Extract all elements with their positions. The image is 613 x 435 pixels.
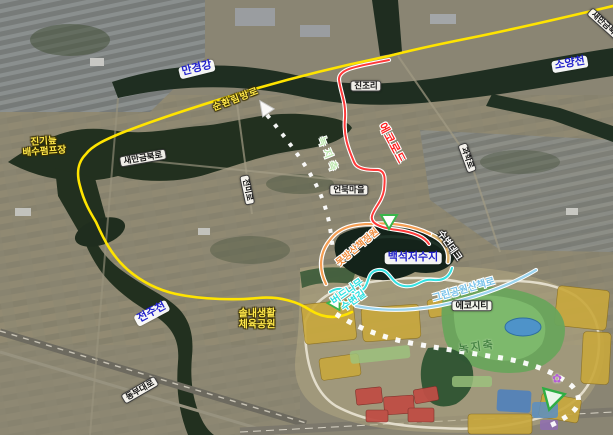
pump-station-label: 진기늪 배수펌프장 xyxy=(22,136,67,159)
map-artwork xyxy=(0,0,613,435)
village-label-jinjori: 진조리 xyxy=(350,81,381,92)
sports-park-label: 솔내생활 체육공원 xyxy=(239,310,276,331)
satellite-map: 만경강 소양천 순환림방로 새만금북로 진조리 에코로드 진기늪 배수펌프장 새… xyxy=(0,0,613,435)
flower-icon: ✿ xyxy=(552,373,562,386)
reservoir-label: 백석저수지 xyxy=(385,252,442,264)
sports-park-line1: 솔내생활 xyxy=(239,310,276,321)
district-label-ecocity: 에코시티 xyxy=(451,300,492,311)
sports-park-line2: 체육공원 xyxy=(239,320,276,331)
village-label-eonbuk: 언북마을 xyxy=(329,185,368,196)
